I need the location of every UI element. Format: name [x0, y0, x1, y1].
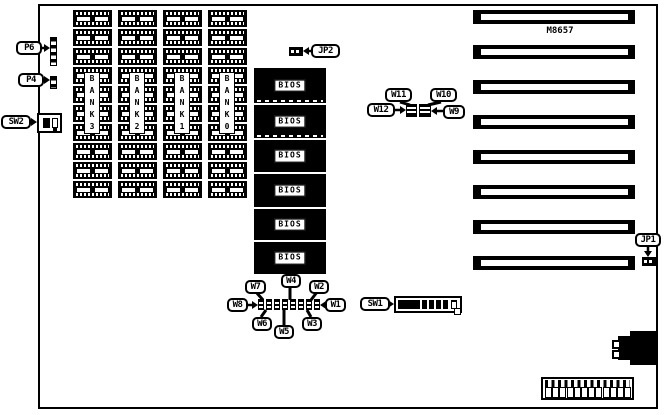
bank-label: BANK3	[84, 72, 100, 134]
callout-p4: P4	[18, 73, 44, 87]
connector-pin	[617, 387, 624, 398]
connector-pin	[552, 387, 559, 398]
callout-w10: W10	[430, 88, 457, 102]
connector-pin	[610, 387, 617, 398]
bios-chip: BIOS	[254, 242, 326, 274]
memory-chip	[118, 29, 157, 46]
bios-chip: BIOS	[254, 105, 326, 138]
callout-w12: W12	[367, 103, 395, 117]
jumper-block	[298, 299, 304, 310]
bank-label: BANK0	[219, 72, 235, 134]
callout-sw2: SW2	[1, 115, 31, 129]
keyboard-connector	[612, 331, 658, 365]
connector-pin	[559, 387, 566, 398]
callout-jp1: JP1	[635, 233, 661, 247]
model-number-label: M8657	[536, 26, 584, 36]
connector-p6	[50, 37, 57, 66]
memory-chip	[118, 48, 157, 65]
connector-p4	[50, 76, 57, 89]
expansion-slot	[473, 220, 635, 234]
callout-w9: W9	[443, 105, 465, 119]
dip-switch-sw1	[394, 296, 462, 313]
callout-w4: W4	[281, 274, 301, 288]
bios-label: BIOS	[274, 184, 305, 197]
bios-label: BIOS	[274, 252, 305, 265]
callout-sw1: SW1	[360, 297, 390, 311]
bios-label: BIOS	[274, 218, 305, 231]
jumper-block	[274, 299, 280, 310]
connector-pin	[603, 387, 610, 398]
expansion-slot	[473, 80, 635, 94]
memory-chip	[163, 10, 202, 27]
expansion-slot	[473, 10, 635, 24]
memory-chip	[118, 181, 157, 198]
jumper-jp2	[289, 47, 303, 56]
jumper-block	[258, 299, 264, 310]
expansion-slot	[473, 45, 635, 59]
bios-chip: BIOS	[254, 174, 326, 207]
jumper-block	[290, 299, 296, 310]
memory-chip	[118, 162, 157, 179]
callout-w6: W6	[252, 317, 272, 331]
expansion-slot	[473, 115, 635, 129]
bios-label: BIOS	[274, 150, 305, 163]
memory-chip	[73, 181, 112, 198]
expansion-slot	[473, 185, 635, 199]
memory-chip	[73, 143, 112, 160]
callout-p6: P6	[16, 41, 42, 55]
jumper-block	[282, 299, 288, 310]
connector-pin	[567, 387, 574, 398]
memory-chip	[118, 10, 157, 27]
memory-chip	[163, 48, 202, 65]
jumper-block-w11-w12	[406, 104, 417, 117]
memory-chip	[163, 162, 202, 179]
connector-pin	[595, 387, 602, 398]
motherboard-diagram: M8657 BANK3BANK2BANK1BANK0BIOSBIOSBIOSBI…	[0, 0, 667, 415]
bios-chip: BIOS	[254, 140, 326, 172]
callout-jp2: JP2	[311, 44, 340, 58]
memory-chip	[73, 10, 112, 27]
memory-chip	[208, 162, 247, 179]
memory-chip	[208, 48, 247, 65]
bios-label: BIOS	[274, 115, 305, 128]
bios-chip: BIOS	[254, 68, 326, 103]
jumper-block	[314, 299, 320, 310]
callout-w7: W7	[245, 280, 266, 294]
memory-chip	[73, 29, 112, 46]
bank-label: BANK2	[129, 72, 145, 134]
connector-pin	[574, 387, 581, 398]
bios-label: BIOS	[274, 79, 305, 92]
memory-chip	[73, 48, 112, 65]
callout-w2: W2	[309, 280, 329, 294]
connector-pin	[588, 387, 595, 398]
memory-chip	[208, 29, 247, 46]
callout-w8: W8	[227, 298, 248, 312]
memory-chip	[163, 143, 202, 160]
memory-chip	[208, 181, 247, 198]
memory-chip	[73, 162, 112, 179]
memory-chip	[208, 10, 247, 27]
expansion-slot	[473, 150, 635, 164]
expansion-slot	[473, 256, 635, 270]
jumper-block	[306, 299, 312, 310]
callout-w11: W11	[385, 88, 412, 102]
memory-chip	[163, 181, 202, 198]
jumper-jp1	[642, 257, 656, 266]
connector-pin	[624, 387, 631, 398]
connector-pin	[581, 387, 588, 398]
dip-switch-sw2	[37, 113, 62, 133]
connector-pin	[545, 387, 552, 398]
bank-label: BANK1	[174, 72, 190, 134]
jumper-block-w9-w10	[419, 104, 431, 117]
memory-chip	[118, 143, 157, 160]
callout-w3: W3	[302, 317, 322, 331]
memory-chip	[163, 29, 202, 46]
memory-chip	[208, 143, 247, 160]
bios-chip: BIOS	[254, 209, 326, 240]
callout-w5: W5	[274, 325, 294, 339]
callout-w1: W1	[325, 298, 346, 312]
jumper-block	[266, 299, 272, 310]
